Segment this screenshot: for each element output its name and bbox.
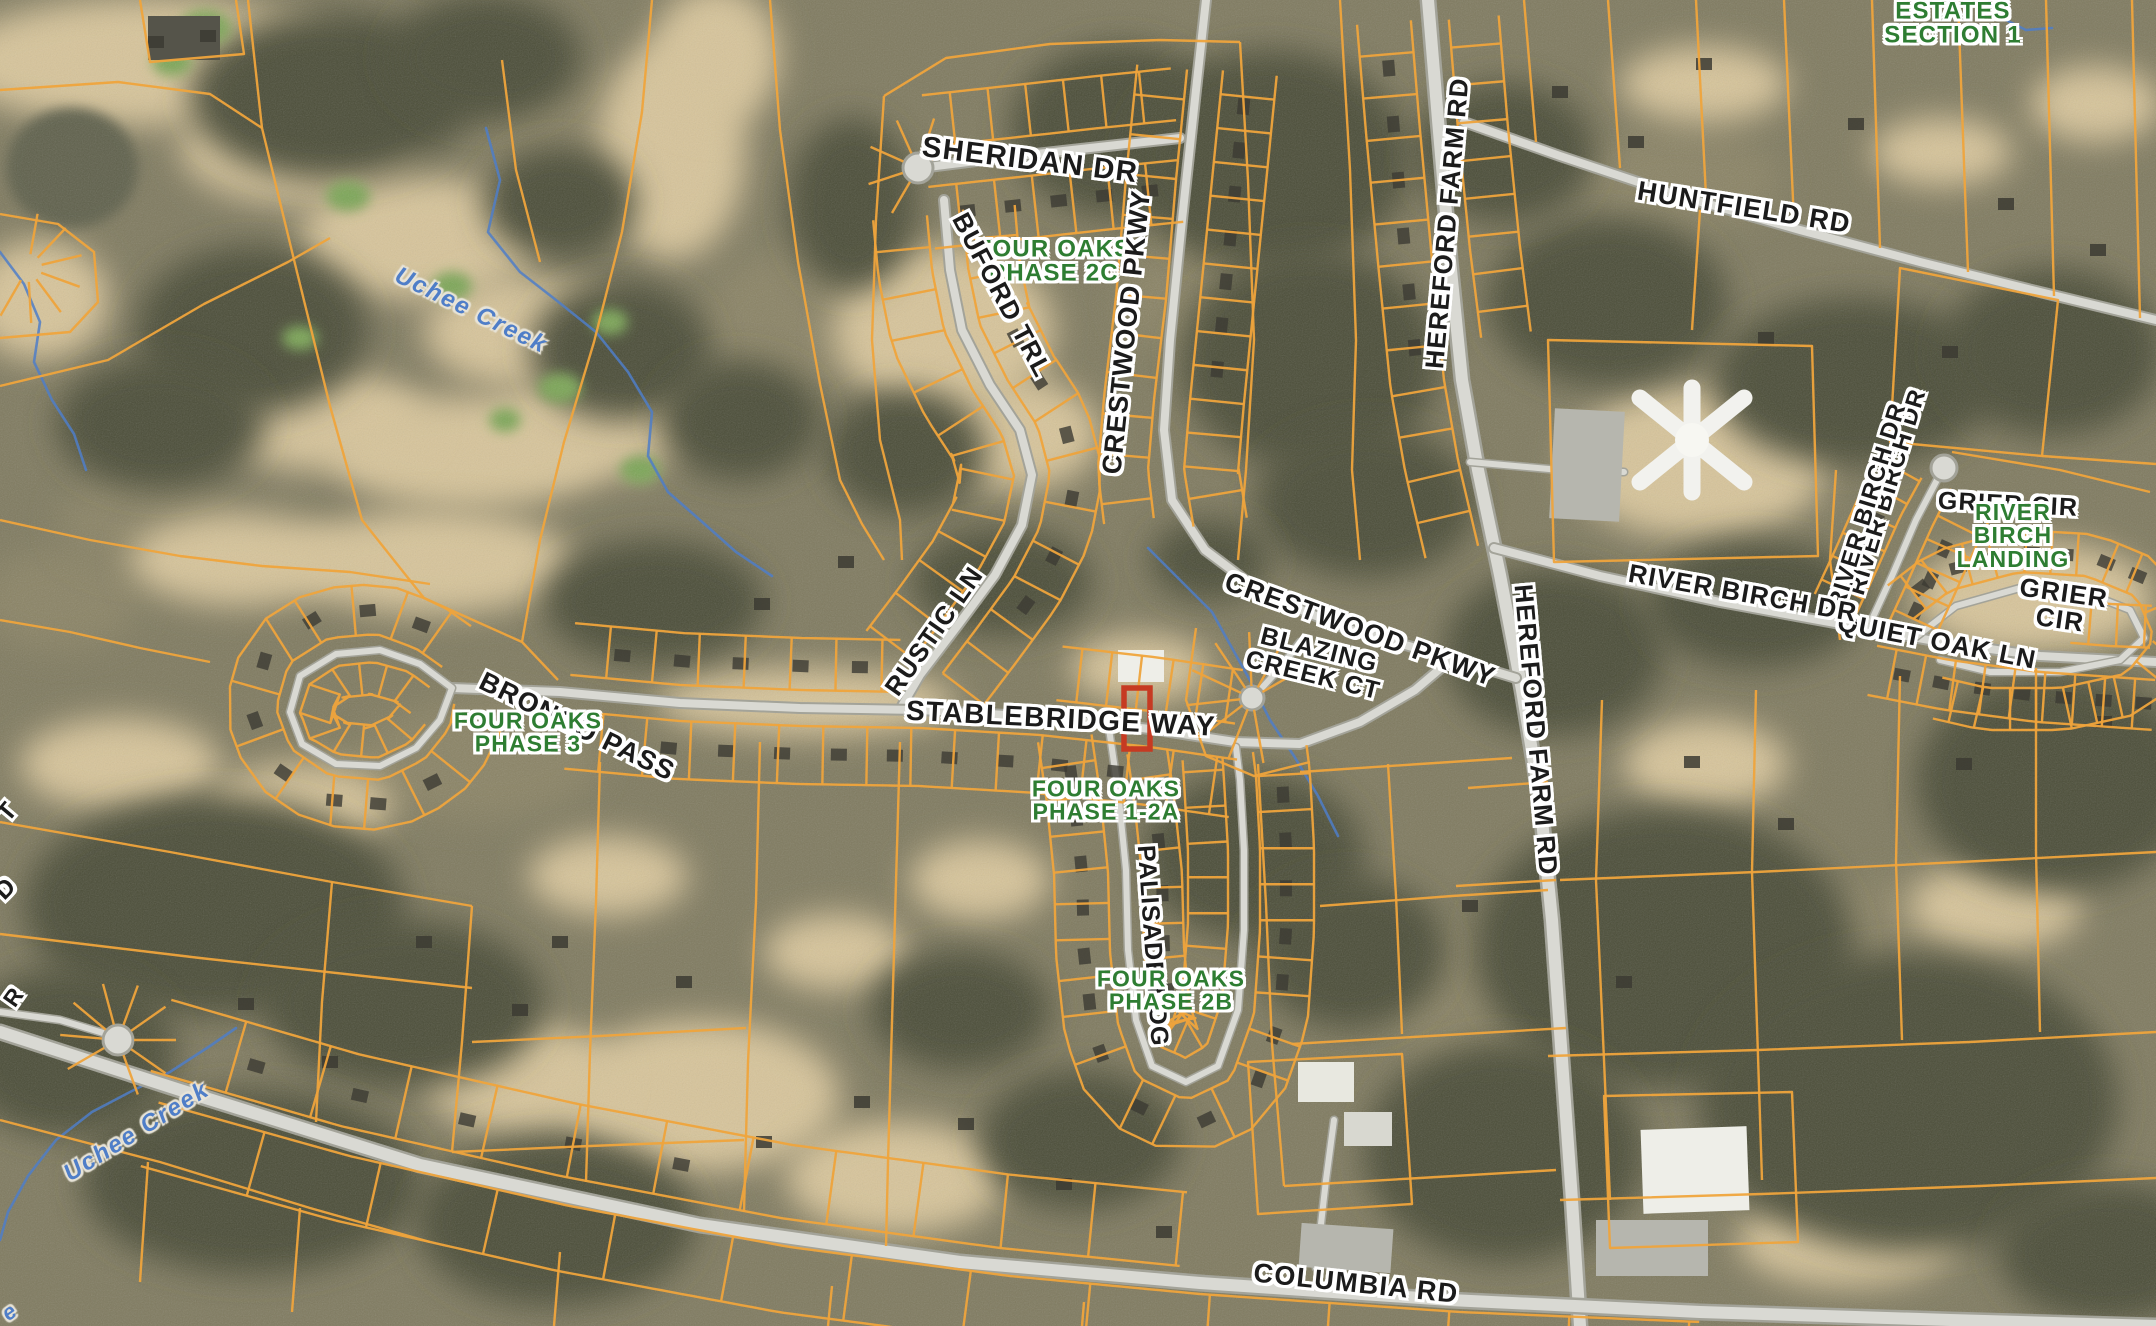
map-viewport[interactable]: SHERIDAN DRFOUR OAKS PHASE 2CBUFORD TRLC… (0, 0, 2156, 1326)
map-canvas[interactable] (0, 0, 2156, 1326)
